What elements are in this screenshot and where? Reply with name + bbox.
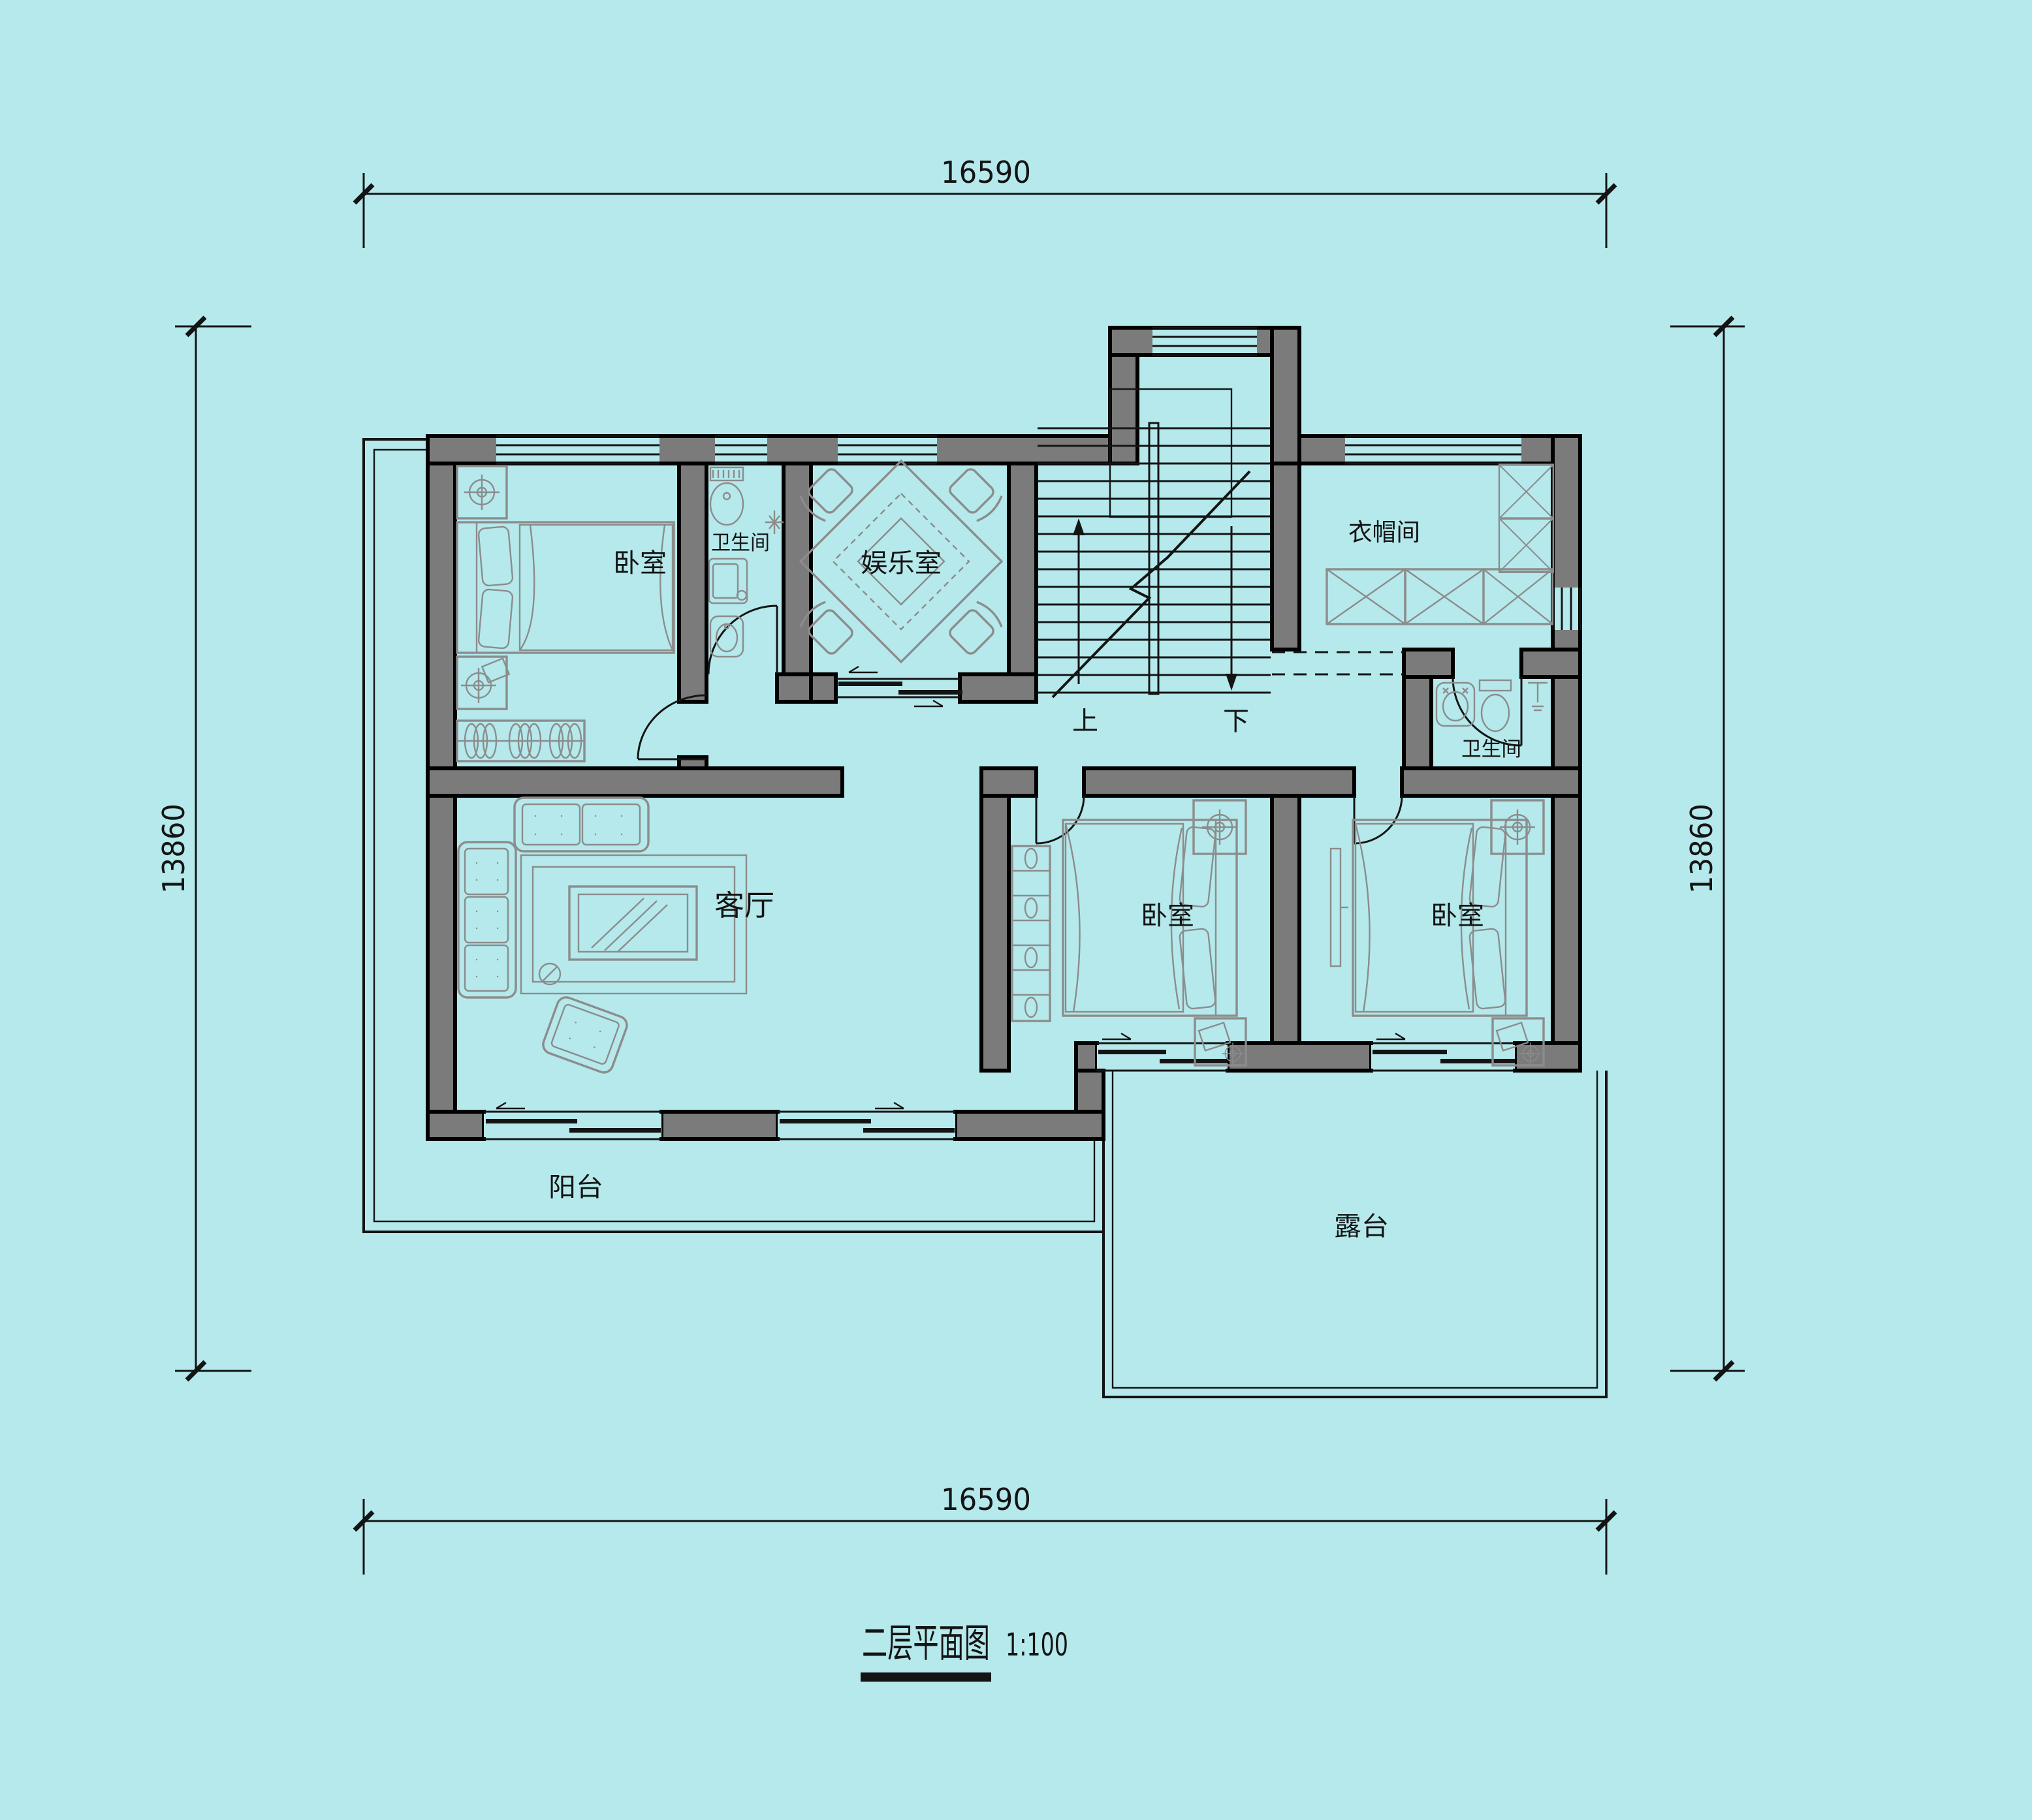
room-label-bedroom-e: 卧室 [1431, 901, 1484, 931]
dim-top-label: 16590 [941, 155, 1031, 190]
room-label-bedroom-nw: 卧室 [613, 548, 667, 578]
dim-right-label: 13860 [1684, 804, 1719, 894]
dim-bottom-label: 16590 [941, 1482, 1031, 1517]
window [1345, 436, 1521, 463]
title-underline [861, 1672, 991, 1682]
stair-label-up: 上 [1072, 706, 1098, 736]
window [1553, 588, 1580, 630]
room-label-entertainment: 娱乐室 [861, 548, 942, 578]
stair-label-down: 下 [1223, 706, 1249, 736]
floor-plan-canvas: 16590 16590 13860 13860 [0, 0, 2032, 1820]
room-label-bedroom-mid: 卧室 [1141, 901, 1194, 931]
window [496, 436, 659, 463]
room-label-cloakroom: 衣帽间 [1348, 518, 1420, 546]
room-label-living: 客厅 [714, 889, 774, 922]
room-label-balcony: 阳台 [548, 1172, 603, 1202]
room-label-terrace: 露台 [1334, 1212, 1389, 1242]
room-label-bathroom-n: 卫生间 [711, 531, 770, 555]
window [838, 436, 937, 463]
room-label-bathroom-e: 卫生间 [1461, 738, 1521, 761]
window [715, 436, 767, 463]
window [1152, 328, 1257, 355]
dim-left-label: 13860 [156, 804, 191, 894]
title-scale: 1:100 [1006, 1627, 1068, 1663]
paper-background [0, 0, 2032, 1820]
title-text: 二层平面图 [862, 1621, 990, 1667]
